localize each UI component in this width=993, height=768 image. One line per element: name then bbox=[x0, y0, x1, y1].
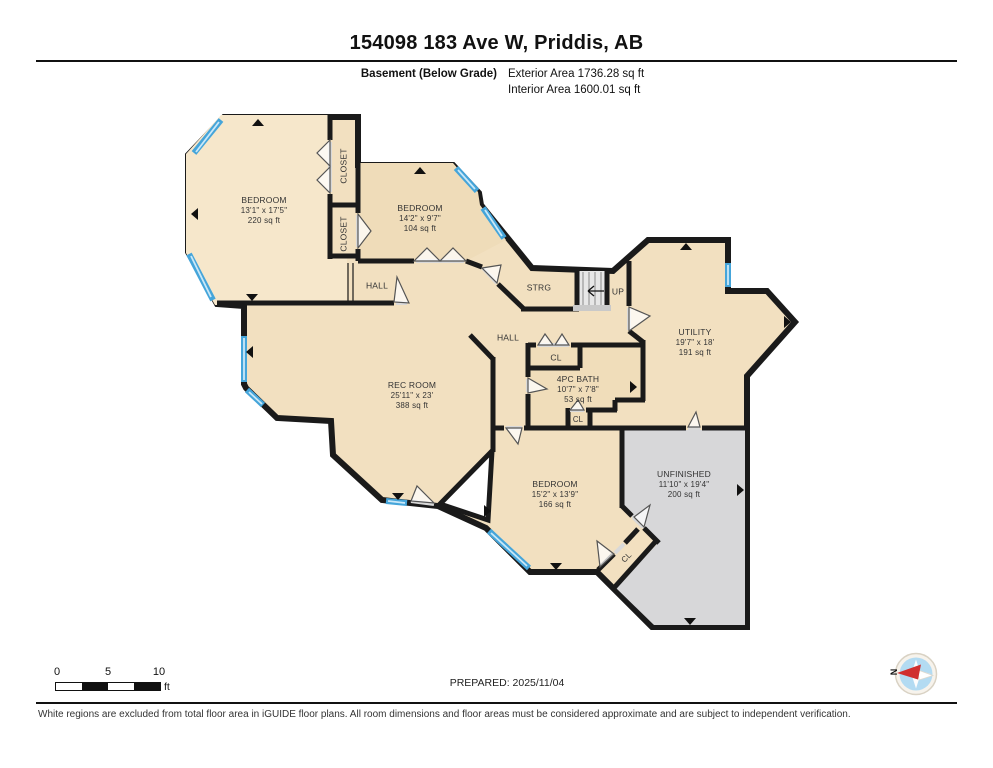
room-label-hall-central: HALL bbox=[497, 332, 519, 343]
floorplan-drawing bbox=[0, 0, 993, 768]
footer-divider bbox=[36, 702, 957, 704]
compass-icon bbox=[896, 654, 937, 695]
scale-label-0: 0 bbox=[47, 666, 67, 678]
north-label: N bbox=[889, 669, 899, 676]
scale-label-5: 5 bbox=[98, 666, 118, 678]
room-label-unfinished: UNFINISHED 11'10" x 19'4" 200 sq ft bbox=[657, 469, 711, 501]
room-label-utility: UTILITY 19'7" x 18' 191 sq ft bbox=[676, 327, 715, 359]
scale-bar-strip bbox=[55, 682, 161, 691]
scale-label-10: 10 bbox=[149, 666, 169, 678]
room-label-cl-bath: CL bbox=[573, 415, 583, 425]
disclaimer-text: White regions are excluded from total fl… bbox=[38, 709, 958, 720]
room-label-strg: STRG bbox=[527, 282, 551, 293]
floorplan-sheet: 154098 183 Ave W, Priddis, AB Basement (… bbox=[0, 0, 993, 768]
prepared-date: PREPARED: 2025/11/04 bbox=[395, 677, 619, 689]
room-label-up: UP bbox=[612, 286, 624, 297]
room-label-hall-upper: HALL bbox=[366, 280, 388, 291]
scale-unit: ft bbox=[164, 681, 170, 693]
room-label-rec-room: REC ROOM 25'11" x 23' 388 sq ft bbox=[388, 380, 436, 412]
room-label-closet2: CLOSET bbox=[338, 216, 349, 251]
room-label-bath: 4PC BATH 10'7" x 7'8" 53 sq ft bbox=[557, 374, 600, 406]
room-label-bedroom2: BEDROOM 14'2" x 9'7" 104 sq ft bbox=[397, 203, 442, 235]
room-label-closet1: CLOSET bbox=[338, 148, 349, 183]
room-label-cl-hall: CL bbox=[550, 352, 561, 363]
room-label-bedroom1: BEDROOM 13'1" x 17'5" 220 sq ft bbox=[241, 195, 287, 227]
room-label-bedroom3: BEDROOM 15'2" x 13'9" 166 sq ft bbox=[532, 479, 578, 511]
